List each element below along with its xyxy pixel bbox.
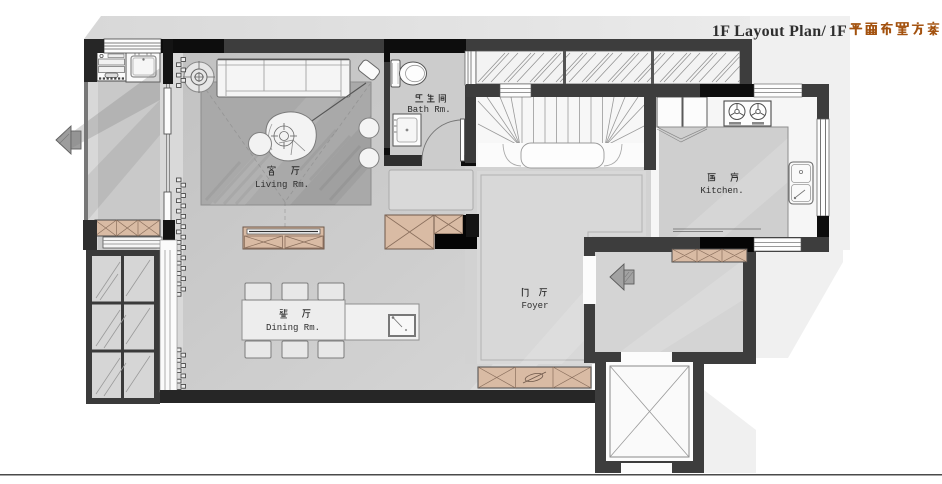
svg-text:1F Layout Plan/: 1F Layout Plan/ — [712, 23, 826, 40]
svg-text:Bath Rm.: Bath Rm. — [407, 105, 450, 115]
svg-text:1F: 1F — [829, 23, 847, 40]
svg-text:Living Rm.: Living Rm. — [255, 180, 309, 190]
svg-text:Dining Rm.: Dining Rm. — [266, 323, 320, 333]
svg-text:Foyer: Foyer — [521, 301, 548, 311]
svg-text:Kitchen.: Kitchen. — [700, 186, 743, 196]
